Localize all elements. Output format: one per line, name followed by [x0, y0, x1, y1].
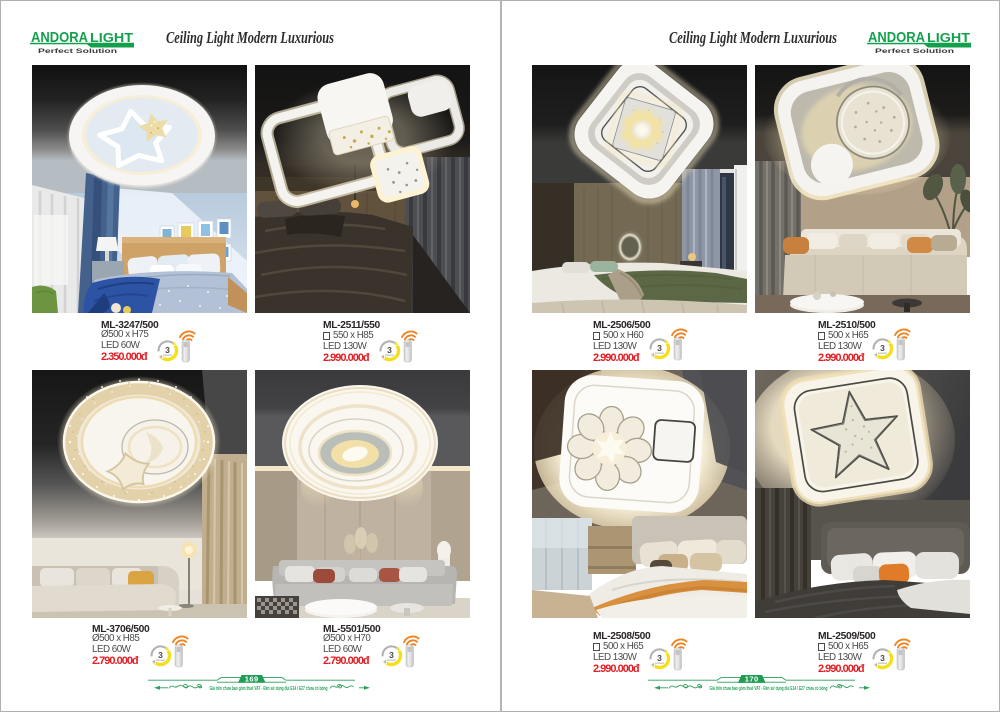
svg-text:Perfect Solution: Perfect Solution	[875, 48, 954, 55]
svg-text:Ceiling Light Modern Luxurious: Ceiling Light Modern Luxurious	[669, 28, 837, 47]
svg-text:LIGHT: LIGHT	[90, 30, 133, 45]
svg-text:Ceiling Light Modern Luxurious: Ceiling Light Modern Luxurious	[166, 28, 334, 47]
svg-text:Perfect Solution: Perfect Solution	[38, 48, 117, 55]
svg-text:LIGHT: LIGHT	[927, 30, 970, 45]
svg-text:170: 170	[745, 675, 759, 684]
